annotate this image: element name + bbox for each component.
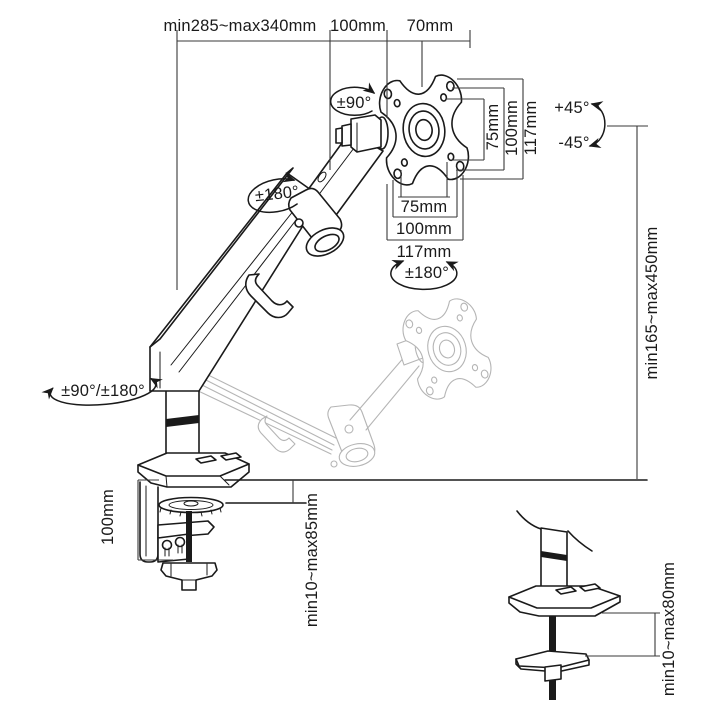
keyhole-slot — [176, 538, 185, 547]
label-clamp-thickness-range: min10~max85mm — [303, 493, 321, 627]
label-vesa-side-117: 117mm — [522, 101, 540, 156]
label-vesa-bottom-117: 117mm — [397, 243, 452, 261]
label-head-swivel: ±180° — [405, 264, 449, 282]
label-vesa-side-100: 100mm — [503, 100, 521, 156]
label-tilt-up: +45° — [554, 99, 589, 117]
keyhole-slot — [163, 541, 172, 550]
pole-break-line — [568, 531, 592, 551]
grommet-nut — [545, 665, 561, 681]
label-vesa-depth: 70mm — [407, 17, 454, 35]
label-vesa-bottom-75: 75mm — [401, 198, 448, 216]
pole-break-line — [517, 511, 541, 529]
diagram-canvas: min285~max340mm 100mm 70mm 75mm 100mm 11… — [0, 0, 720, 720]
label-tilt-down: -45° — [558, 134, 589, 152]
label-clamp-column-height: 100mm — [99, 489, 117, 545]
label-reach: min285~max340mm — [164, 17, 317, 35]
label-base-swivel: ±90°/±180° — [61, 382, 145, 400]
tilt-arc — [590, 104, 605, 146]
clamp-screw — [186, 511, 192, 562]
desk-clamp — [138, 453, 249, 590]
grommet-mount — [509, 511, 620, 700]
label-vesa-side-75: 75mm — [484, 104, 502, 151]
vesa-rotation-joint — [336, 115, 388, 152]
monitor-arm-diagram: min285~max340mm 100mm 70mm 75mm 100mm 11… — [0, 0, 720, 720]
label-joint-offset: 100mm — [330, 17, 386, 35]
clamp-knob — [161, 563, 217, 590]
label-height-range: min165~max450mm — [643, 227, 661, 380]
label-grommet-thickness-range: min10~max80mm — [660, 562, 678, 696]
label-vesa-bottom-100: 100mm — [396, 220, 452, 238]
clamp-back-bracket — [140, 482, 158, 562]
desk-surface — [225, 480, 647, 503]
label-vesa-rotation: ±90° — [337, 94, 372, 112]
